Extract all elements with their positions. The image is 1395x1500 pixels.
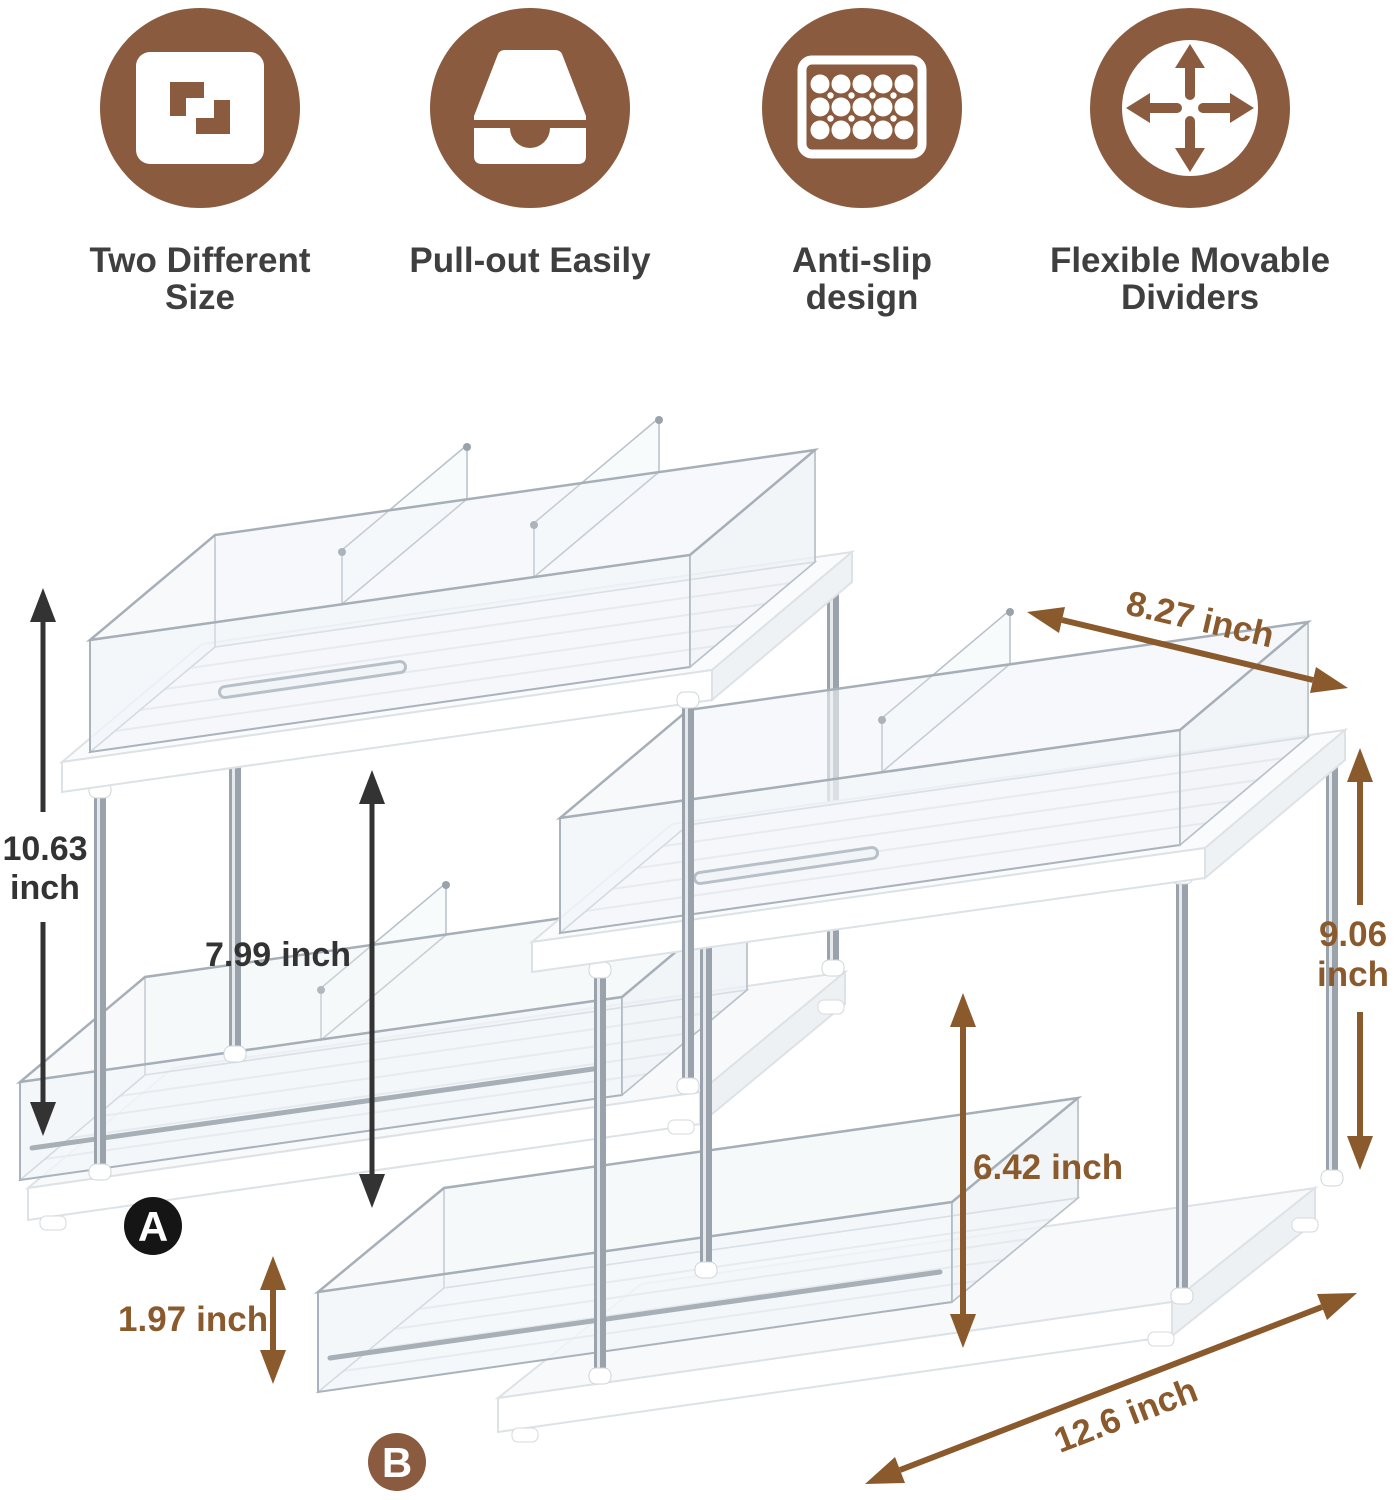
dim-total-height-b: 9.06 inch: [1293, 915, 1395, 996]
unit-a-badge: A: [124, 1197, 182, 1255]
dim-tier-clearance-b: 6.42 inch: [973, 1148, 1123, 1188]
product-infographic: Two DifferentSize Pull-out Easily: [0, 0, 1395, 1500]
dim-total-height-a: 10.63 inch: [0, 830, 105, 908]
unit-a-badge-label: A: [138, 1203, 168, 1250]
product-illustration: A B: [0, 0, 1395, 1500]
dim-tier-clearance-a: 7.99 inch: [205, 936, 351, 975]
unit-b-badge: B: [368, 1433, 426, 1491]
unit-b-badge-label: B: [382, 1439, 412, 1486]
dim-tray-height: 1.97 inch: [118, 1300, 268, 1340]
